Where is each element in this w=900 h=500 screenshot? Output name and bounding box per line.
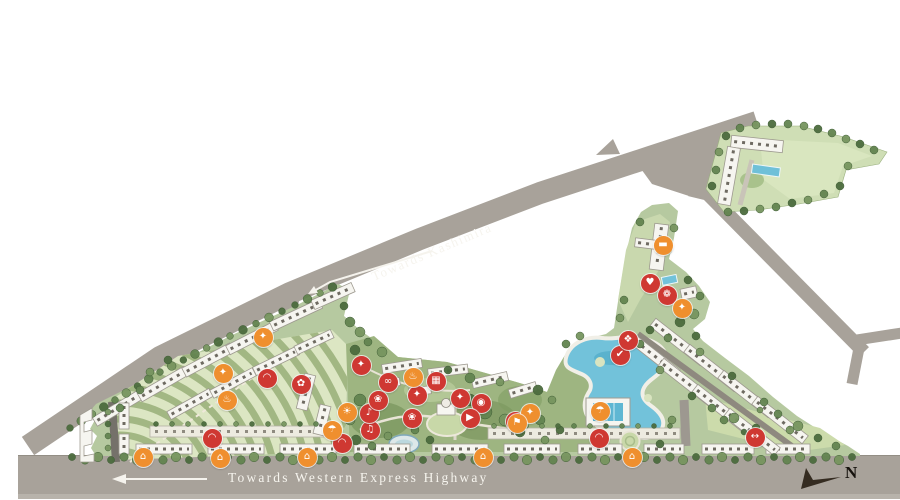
- marker-residence[interactable]: ⌂: [298, 448, 317, 467]
- marker-court[interactable]: ▦: [427, 372, 446, 391]
- marker-ferris-wheel[interactable]: ❁: [658, 286, 677, 305]
- marker-golf[interactable]: ⚑: [508, 414, 527, 433]
- marker-pool-deck[interactable]: ☂: [591, 402, 610, 421]
- marker-gym[interactable]: ↔: [746, 428, 765, 447]
- marker-jacuzzi[interactable]: ♨: [404, 368, 423, 387]
- marker-amenity[interactable]: ✦: [673, 299, 692, 318]
- marker-amenity[interactable]: ✦: [214, 364, 233, 383]
- marker-residence[interactable]: ⌂: [623, 448, 642, 467]
- marker-music[interactable]: ♫: [361, 421, 380, 440]
- marker-amphitheatre[interactable]: ◠: [203, 429, 222, 448]
- marker-spa[interactable]: ❀: [403, 409, 422, 428]
- marker-wellness[interactable]: ♥: [641, 274, 660, 293]
- marker-amphitheatre[interactable]: ◠: [258, 369, 277, 388]
- marker-pet-park[interactable]: ❖: [619, 331, 638, 350]
- master-plan-canvas: Towards Kashimira Towards Western Expres…: [0, 0, 900, 500]
- marker-sun-deck[interactable]: ☀: [338, 403, 357, 422]
- marker-cycling[interactable]: ∞: [379, 373, 398, 392]
- marker-poolside[interactable]: ☂: [323, 421, 342, 440]
- highway-road-label: Towards Western Express Highway: [228, 470, 489, 486]
- marker-club[interactable]: ✦: [451, 389, 470, 408]
- edge-building: [80, 408, 94, 462]
- marker-spa[interactable]: ♨: [218, 391, 237, 410]
- marker-play[interactable]: ▶: [461, 409, 480, 428]
- marker-play[interactable]: ✦: [408, 386, 427, 405]
- marker-garden[interactable]: ❀: [369, 391, 388, 410]
- marker-residence[interactable]: ⌂: [134, 448, 153, 467]
- marker-residence[interactable]: ⌂: [211, 449, 230, 468]
- marker-sports[interactable]: ✦: [352, 356, 371, 375]
- marker-residence[interactable]: ⌂: [474, 448, 493, 467]
- marker-amphitheatre[interactable]: ◠: [590, 429, 609, 448]
- north-label: N: [845, 463, 858, 483]
- marker-garden[interactable]: ✿: [292, 375, 311, 394]
- marker-seating[interactable]: ▬: [654, 236, 673, 255]
- marker-amenity[interactable]: ✦: [254, 328, 273, 347]
